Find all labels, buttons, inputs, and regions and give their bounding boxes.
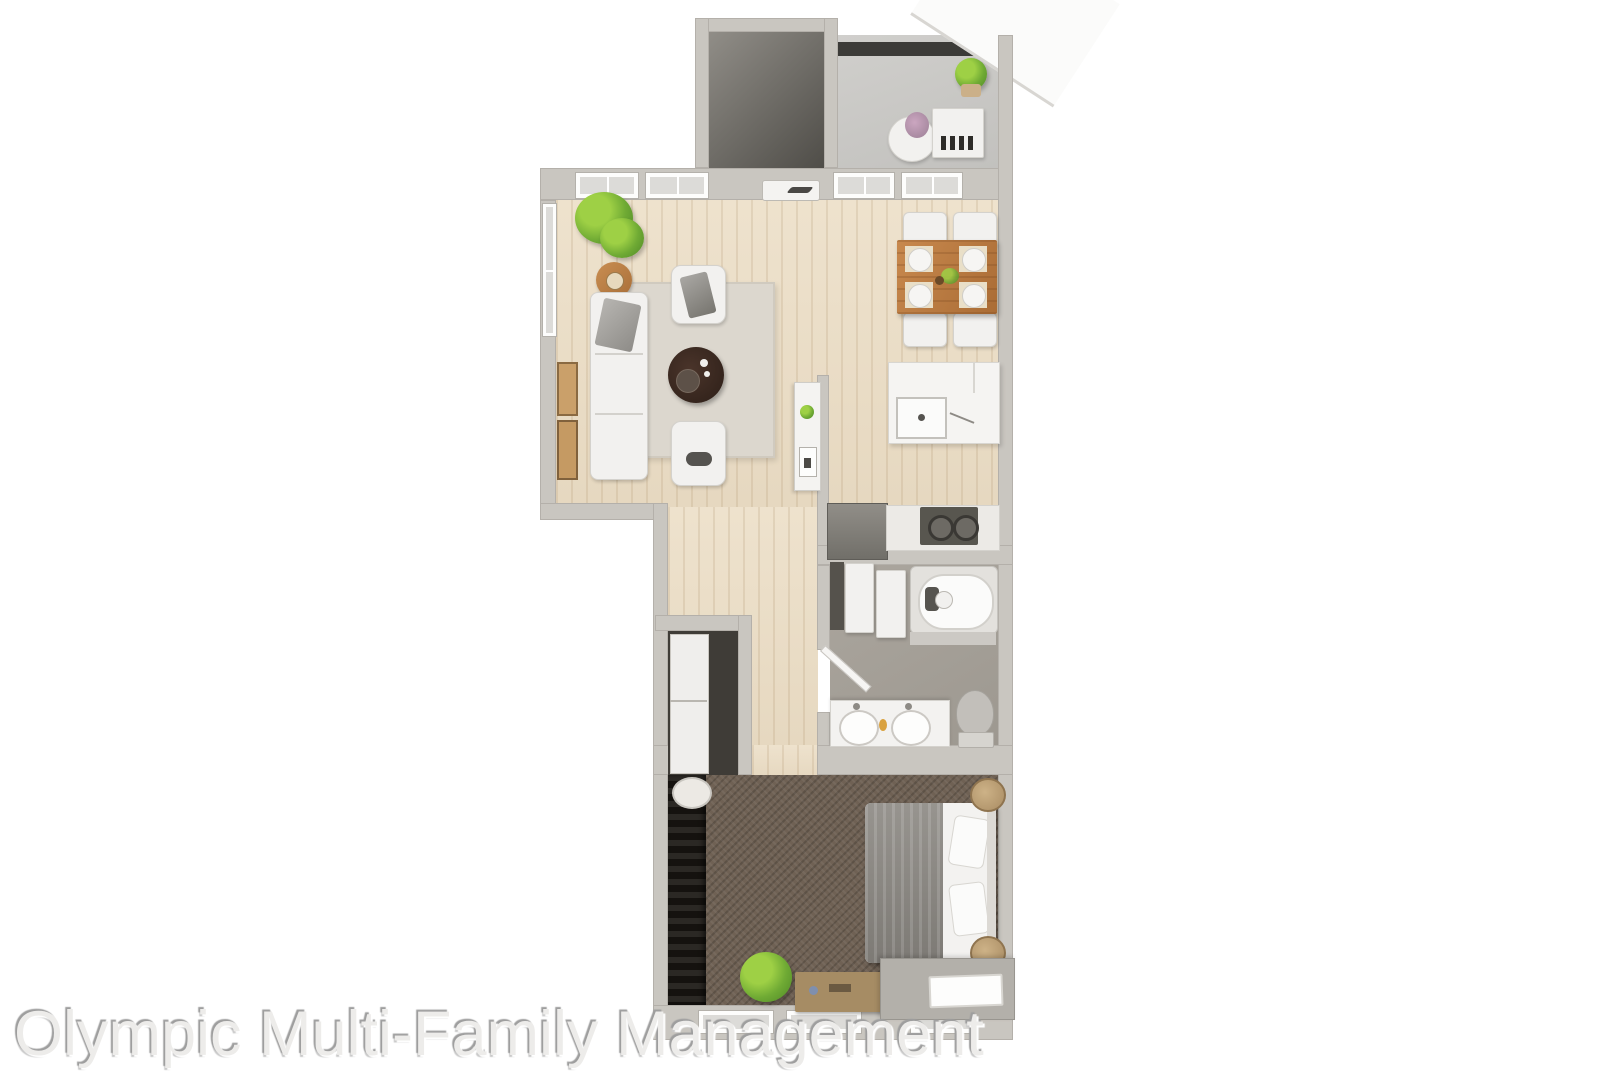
bench-decor-2 (829, 984, 851, 992)
bedroom-closet-strip (668, 775, 706, 1005)
sofa-throw-blanket (594, 298, 641, 353)
kitchen-sink (896, 397, 947, 439)
armchair-bottom-cushion (686, 452, 712, 466)
sofa-cushion-line-2 (595, 413, 643, 415)
plate-3 (908, 284, 932, 308)
wall-bedroom-top-right (817, 745, 1013, 775)
coffee-table-cup-1 (700, 359, 708, 367)
sofa (590, 292, 648, 480)
coffee-table-cup-2 (704, 371, 710, 377)
vanity-faucet-2 (905, 703, 912, 710)
closet-basket (672, 777, 712, 809)
storage-closet-wall-top (695, 18, 838, 32)
tub-drain-cap (935, 591, 953, 609)
double-vanity (830, 700, 950, 747)
wall-art-1 (557, 362, 578, 416)
laundry-closet-wall-right (738, 615, 752, 775)
vanity-sink-2 (891, 710, 931, 746)
armchair-top (671, 265, 726, 324)
floorplan-image: Olympic Multi-Family Management (0, 0, 1619, 1080)
linen-closet-back (830, 562, 844, 630)
wall-art-2 (557, 420, 578, 480)
console-art (799, 447, 817, 477)
console-plant (800, 405, 814, 419)
bedroom-plant (740, 952, 792, 1002)
counter-edge-line (973, 363, 975, 393)
window-left (542, 203, 557, 337)
hall-console-shelf (794, 382, 821, 491)
plate-4 (962, 284, 986, 308)
burner-2 (953, 515, 979, 541)
range-cooktop (920, 507, 978, 545)
kitchen-island-counter (888, 362, 1000, 444)
bed-pillow-1 (947, 814, 990, 869)
wall-step (540, 503, 668, 520)
bathtub-ledge (910, 632, 996, 645)
dining-chair-4 (953, 312, 997, 347)
storage-closet-wall-left (695, 18, 709, 168)
window-top-3 (833, 172, 895, 199)
side-table-top-decor (606, 272, 624, 290)
fixture-glyph (786, 187, 813, 193)
wall-right (998, 35, 1013, 1040)
linen-shelf-2 (876, 570, 906, 638)
plate-1 (908, 248, 932, 272)
living-room-plant-2 (600, 218, 644, 258)
balcony-bench (932, 108, 984, 158)
balcony-plant-pot (961, 84, 981, 97)
storage-closet-wall-right (824, 18, 838, 168)
bench-decor-1 (809, 986, 818, 995)
bathtub-surround (910, 566, 998, 634)
wall-fixture (762, 180, 820, 201)
sofa-cushion-line-1 (595, 353, 643, 355)
sink-faucet-arrow (950, 412, 975, 424)
balcony-bottles (941, 136, 973, 150)
washer-dryer-split-line (670, 700, 707, 702)
balcony-table-flowers (905, 112, 929, 138)
vanity-sink-1 (839, 710, 879, 746)
burner-1 (928, 515, 954, 541)
plate-2 (962, 248, 986, 272)
storage-closet-interior (709, 30, 826, 170)
coffee-table-tray (676, 369, 700, 393)
watermark-text: Olympic Multi-Family Management (14, 998, 984, 1070)
vanity-faucet-1 (853, 703, 860, 710)
bed-blanket (865, 803, 943, 963)
refrigerator (827, 503, 888, 560)
toilet-tank (958, 732, 994, 748)
armchair-bottom (671, 421, 726, 486)
toilet-seat (956, 690, 994, 736)
stacked-washer-dryer (670, 634, 709, 774)
bed-pillow-2 (948, 881, 990, 937)
armchair-top-throw (679, 271, 716, 319)
coffee-table (668, 347, 724, 403)
dining-table (897, 240, 997, 314)
sink-drain (918, 414, 925, 421)
dining-chair-3 (903, 312, 947, 347)
table-centerpiece-bowl (935, 276, 944, 285)
vanity-decor (879, 719, 887, 731)
window-top-2 (645, 172, 709, 199)
wall-bathroom-left-a (817, 565, 830, 650)
towel-basket-top (970, 778, 1006, 812)
linen-shelf-1 (845, 563, 874, 633)
console-art-glyph (804, 458, 811, 468)
window-top-4 (901, 172, 963, 199)
